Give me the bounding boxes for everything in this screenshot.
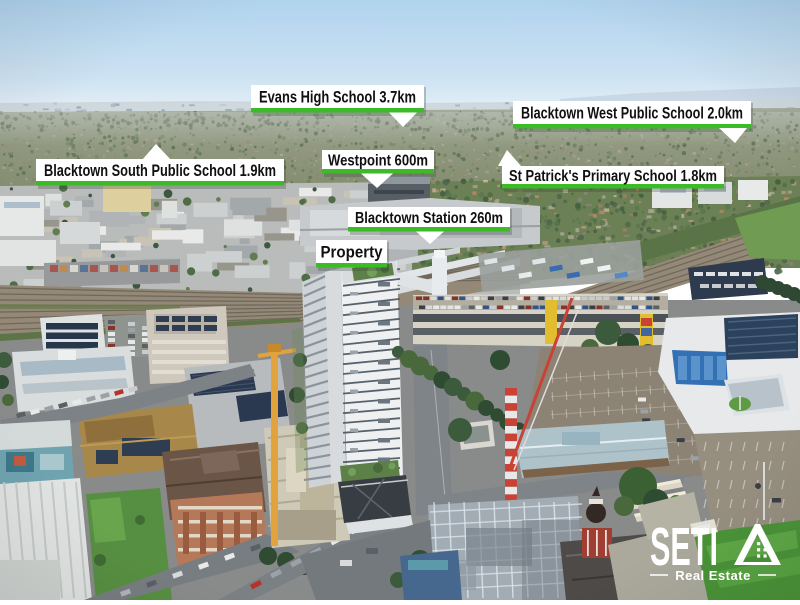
svg-text:Evans High School 3.7km: Evans High School 3.7km <box>259 88 416 107</box>
svg-text:Blacktown Station 260m: Blacktown Station 260m <box>355 210 503 227</box>
svg-text:Westpoint 600m: Westpoint 600m <box>328 152 428 169</box>
svg-text:Blacktown South Public School: Blacktown South Public School 1.9km <box>44 161 276 180</box>
svg-text:Blacktown West Public School 2: Blacktown West Public School 2.0km <box>521 104 743 123</box>
svg-text:Property: Property <box>321 243 383 262</box>
svg-text:Real Estate: Real Estate <box>675 568 751 583</box>
svg-text:St Patrick's Primary School 1.: St Patrick's Primary School 1.8km <box>509 168 717 185</box>
